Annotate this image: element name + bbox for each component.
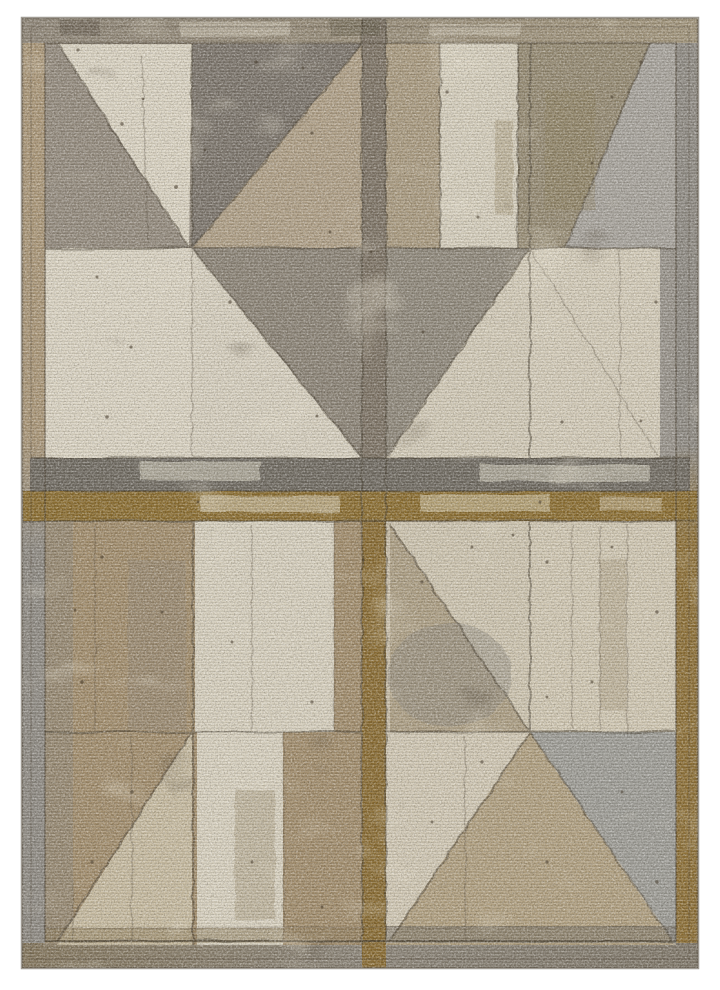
rug-image [0,0,720,990]
nail-hole-dot [477,216,480,219]
nail-hole-dot [310,131,313,134]
nail-hole-dot [120,122,123,125]
nail-hole-dot [310,700,313,703]
nail-hole-dot [611,546,614,549]
nail-hole-dot [471,546,474,549]
rug-photo [0,0,720,990]
nail-hole-dot [130,790,133,793]
nail-hole-dot [591,681,594,684]
nail-hole-dot [204,149,207,152]
nail-hole-dot [654,300,657,303]
nail-hole-dot [591,162,594,165]
nail-hole-dot [611,96,614,99]
nail-hole-dot [480,760,483,763]
nail-hole-dot [105,415,109,419]
nail-hole-dot [90,860,93,863]
nail-hole-dot [546,696,549,699]
nail-hole-dot [321,906,324,909]
nail-hole-dot [545,860,548,863]
nail-hole-dot [197,501,200,504]
nail-hole-dot [74,609,77,612]
nail-hole-dot [231,641,234,644]
nail-hole-dot [621,791,624,794]
nail-hole-dot [422,331,425,334]
texture-grain-dark [22,18,698,968]
nail-hole-dot [370,251,373,254]
nail-hole-dot [80,680,84,684]
nail-hole-dot [302,67,305,70]
nail-hole-dot [545,560,548,563]
nail-hole-dot [174,185,178,189]
nail-hole-dot [254,60,258,64]
nail-hole-dot [512,534,515,537]
nail-hole-dot [76,48,79,51]
nail-hole-dot [640,420,643,423]
nail-hole-dot [539,501,542,504]
nail-hole-dot [655,880,658,883]
nail-hole-dot [560,420,563,423]
nail-hole-dot [362,559,365,562]
nail-hole-dot [431,821,434,824]
nail-hole-dot [161,611,164,614]
nail-hole-dot [96,276,99,279]
nail-hole-dot [316,415,319,418]
nail-hole-dot [639,60,642,63]
nail-hole-dot [129,345,132,348]
nail-hole-dot [142,98,145,101]
nail-hole-dot [445,90,448,93]
nail-hole-dot [228,300,231,303]
nail-hole-dot [100,555,103,558]
nail-hole-dot [329,231,332,234]
nail-hole-dot [420,580,423,583]
rug [22,18,698,968]
nail-hole-dot [655,610,658,613]
nail-hole-dot [251,861,254,864]
